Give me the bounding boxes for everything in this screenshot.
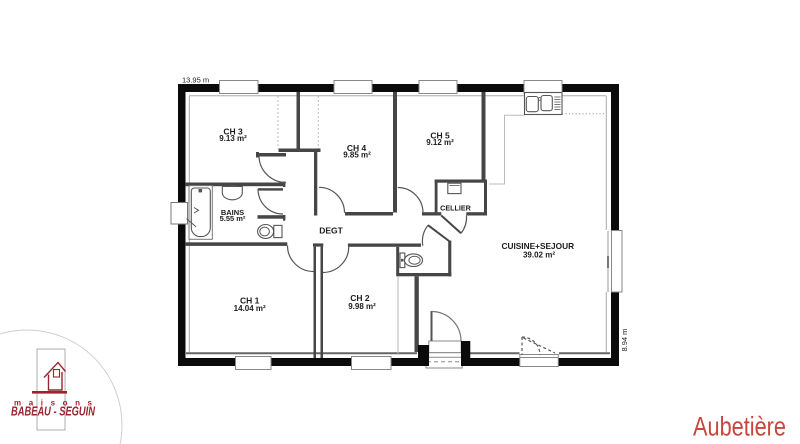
svg-text:9.85 m²: 9.85 m² (343, 151, 371, 160)
svg-text:9.13 m²: 9.13 m² (219, 134, 247, 143)
svg-text:13.95 m: 13.95 m (182, 76, 209, 85)
svg-text:9.98 m²: 9.98 m² (348, 302, 376, 311)
svg-text:14.04 m²: 14.04 m² (234, 304, 266, 313)
svg-text:5.55 m²: 5.55 m² (220, 214, 246, 223)
svg-text:BABEAU - SEGUIN: BABEAU - SEGUIN (11, 405, 96, 419)
svg-text:DEGT: DEGT (319, 226, 343, 236)
svg-text:CUISINE+SEJOUR: CUISINE+SEJOUR (501, 241, 574, 251)
svg-text:39.02 m²: 39.02 m² (523, 251, 555, 260)
svg-text:Aubetière: Aubetière (693, 412, 786, 442)
svg-text:9.12 m²: 9.12 m² (426, 138, 454, 147)
svg-text:8.94 m: 8.94 m (620, 329, 629, 352)
svg-text:CELLIER: CELLIER (440, 204, 472, 213)
